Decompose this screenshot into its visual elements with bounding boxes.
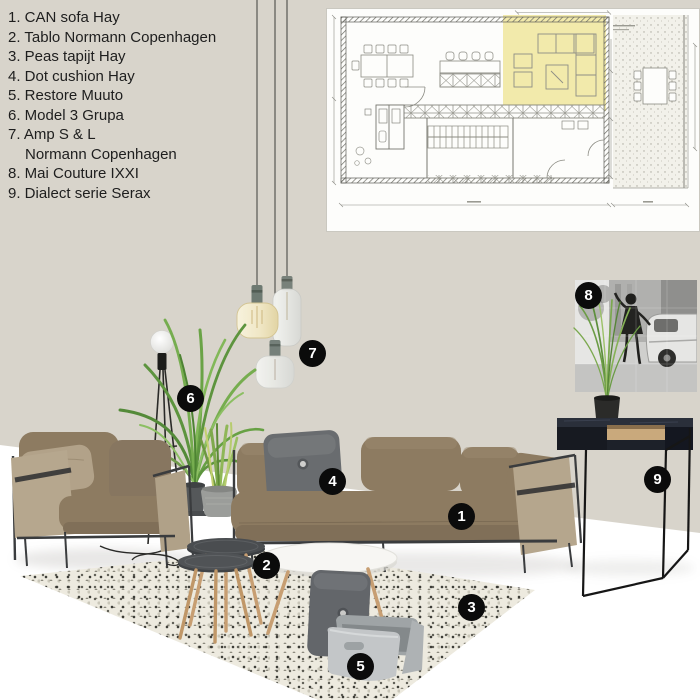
badge-3-rug: 3: [458, 594, 485, 621]
badge-6-lamp: 6: [177, 385, 204, 412]
badge-8-photo: 8: [575, 282, 602, 309]
room-doors: [547, 140, 604, 178]
basket-handle: [344, 642, 364, 650]
terrace-area: [613, 15, 688, 188]
badge-4-cushion: 4: [319, 468, 346, 495]
floorplan-drawing: [327, 9, 699, 231]
door: [405, 87, 425, 107]
stairs: [428, 126, 508, 148]
bathroom-block: [365, 105, 404, 149]
console-frame: [583, 428, 690, 596]
tablo-legs: [180, 570, 251, 642]
badge-7-pendant: 7: [299, 340, 326, 367]
moodboard: 1. CAN sofa Hay 2. Tablo Normann Copenha…: [0, 0, 700, 700]
grass-plant-leaves: [574, 298, 640, 402]
badge-1-sofa: 1: [448, 503, 475, 530]
floorplan-panel: [326, 8, 700, 232]
plants-outline: [355, 147, 371, 165]
badge-9-console: 9: [644, 466, 671, 493]
dining-table: [352, 45, 413, 87]
kitchen-island: [440, 52, 500, 87]
badge-2-tablo: 2: [253, 552, 280, 579]
tablo-table-large: [187, 538, 265, 631]
tablo-table-small: [178, 553, 254, 642]
terrace-table: [643, 68, 667, 104]
bottom-wall-cells: [428, 175, 552, 183]
living-area-highlight: [503, 15, 606, 111]
badge-5-basket: 5: [347, 653, 374, 680]
restore-basket: [320, 610, 430, 688]
